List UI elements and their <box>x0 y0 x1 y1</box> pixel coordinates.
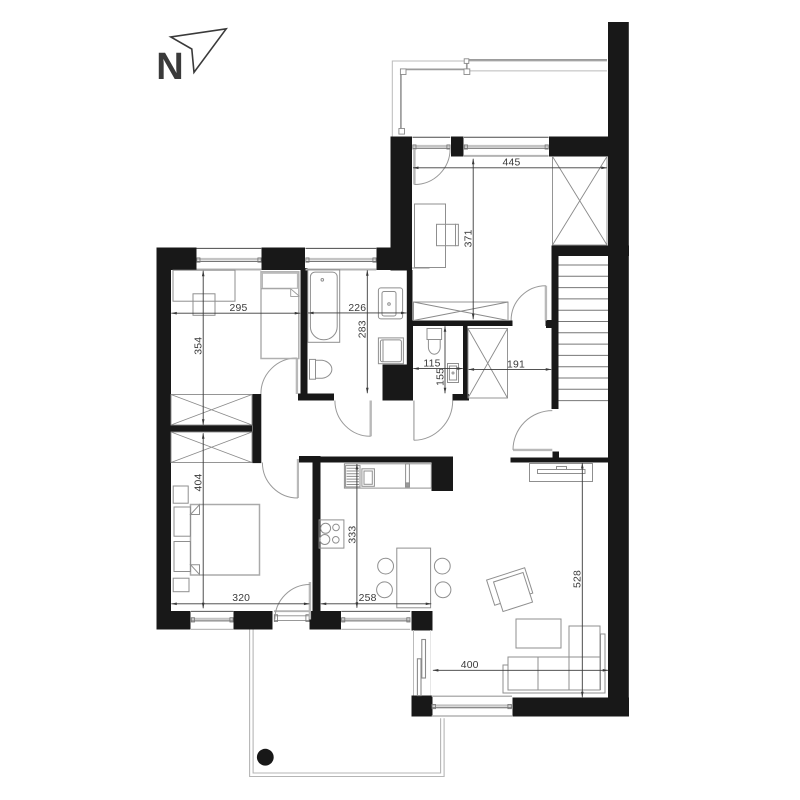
svg-text:283: 283 <box>358 320 369 338</box>
svg-text:N: N <box>156 46 183 88</box>
svg-text:354: 354 <box>194 337 205 355</box>
svg-text:155: 155 <box>435 368 446 386</box>
svg-text:445: 445 <box>503 157 521 168</box>
svg-text:333: 333 <box>347 526 358 544</box>
svg-text:258: 258 <box>359 593 377 604</box>
svg-text:404: 404 <box>194 474 205 492</box>
svg-text:400: 400 <box>461 660 479 671</box>
svg-text:226: 226 <box>348 303 366 314</box>
svg-text:295: 295 <box>230 303 248 314</box>
svg-text:191: 191 <box>507 359 525 370</box>
svg-text:528: 528 <box>573 570 584 588</box>
svg-text:320: 320 <box>232 593 250 604</box>
svg-text:371: 371 <box>464 229 475 247</box>
